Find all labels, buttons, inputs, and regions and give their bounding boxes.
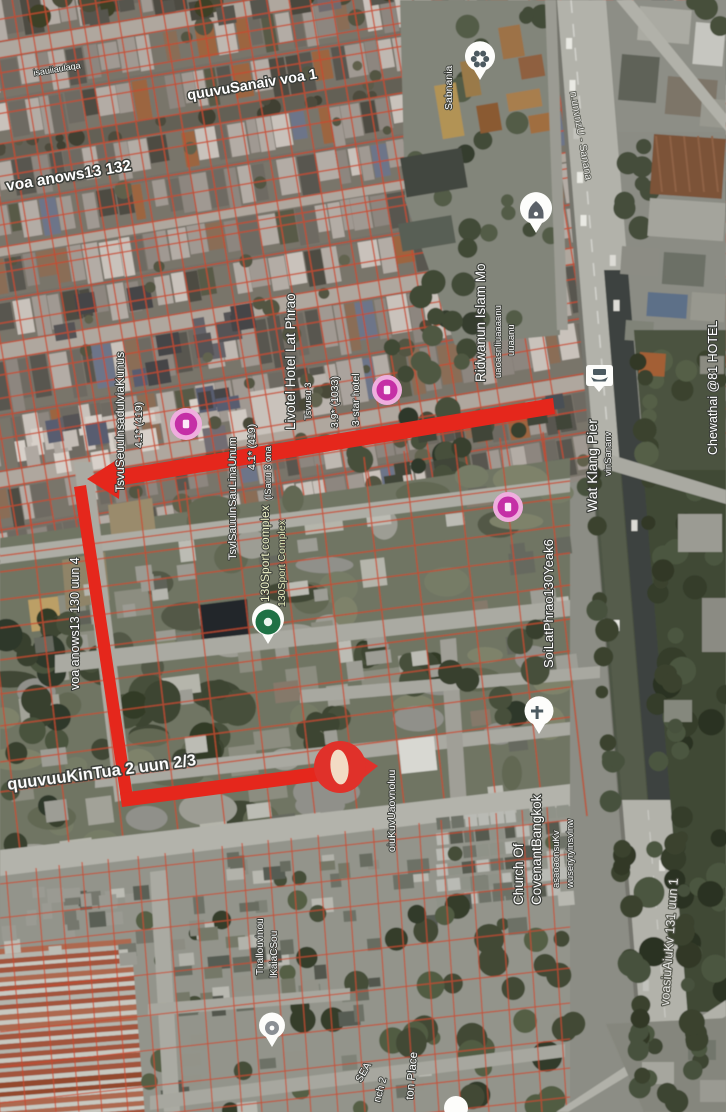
svg-text:CovenantBangkok: CovenantBangkok <box>529 794 544 905</box>
svg-text:4.1* (419): 4.1* (419) <box>246 424 258 470</box>
svg-text:TsvuSeuulnsadulviaKunus: TsvuSeuulnsadulviaKunus <box>113 352 127 492</box>
svg-text:3.9* (1033): 3.9* (1033) <box>329 376 341 428</box>
svg-text:(lSauu 3 ona: (lSauu 3 ona <box>263 445 274 500</box>
svg-text:lKaiaCSou: lKaiaCSou <box>269 931 280 978</box>
svg-text:4.1* (419): 4.1* (419) <box>133 402 145 448</box>
svg-text:Tsvusu 3: Tsvusu 3 <box>303 383 314 421</box>
svg-text:Sabnania: Sabnania <box>443 65 455 110</box>
svg-text:130Sport Complex: 130Sport Complex <box>276 519 288 607</box>
svg-text:vinSananv: vinSananv <box>603 431 614 476</box>
svg-text:TsvlSauulnSauLinaUnum: TsvlSauulnSauLinaUnum <box>227 437 239 560</box>
svg-text:wuseryryinsvlnw: wuseryryinsvlnw <box>565 819 576 889</box>
svg-text:Ridwanun Islam Mo: Ridwanun Islam Mo <box>473 263 488 382</box>
svg-text:uaoasnIiuaaaanu: uaoasnIiuaaaanu <box>493 305 504 378</box>
svg-text:3-star hotel: 3-star hotel <box>350 373 362 426</box>
svg-text:Chewathai @81 HOTEL: Chewathai @81 HOTEL <box>706 321 720 455</box>
svg-text:SoiLatPhrao130Yeak6: SoiLatPhrao130Yeak6 <box>541 539 556 668</box>
svg-text:oiuKuvUaovnoluu: oiuKuvUaovnoluu <box>386 770 398 852</box>
svg-text:Livotel Hotel Lat Phrao: Livotel Hotel Lat Phrao <box>283 293 298 430</box>
svg-text:Wat Klang Pier: Wat Klang Pier <box>584 419 600 512</box>
svg-text:uuaanu: uuaanu <box>506 324 517 356</box>
svg-text:asaoaonsuKv: asaoaonsuKv <box>551 830 562 888</box>
svg-text:130Sport complex: 130Sport complex <box>258 505 272 602</box>
svg-text:voa anows13 130 uun 4: voa anows13 130 uun 4 <box>68 557 82 690</box>
svg-text:Church Of: Church Of <box>511 843 526 905</box>
svg-text:Tnallouvinou: Tnallouvinou <box>255 918 266 975</box>
